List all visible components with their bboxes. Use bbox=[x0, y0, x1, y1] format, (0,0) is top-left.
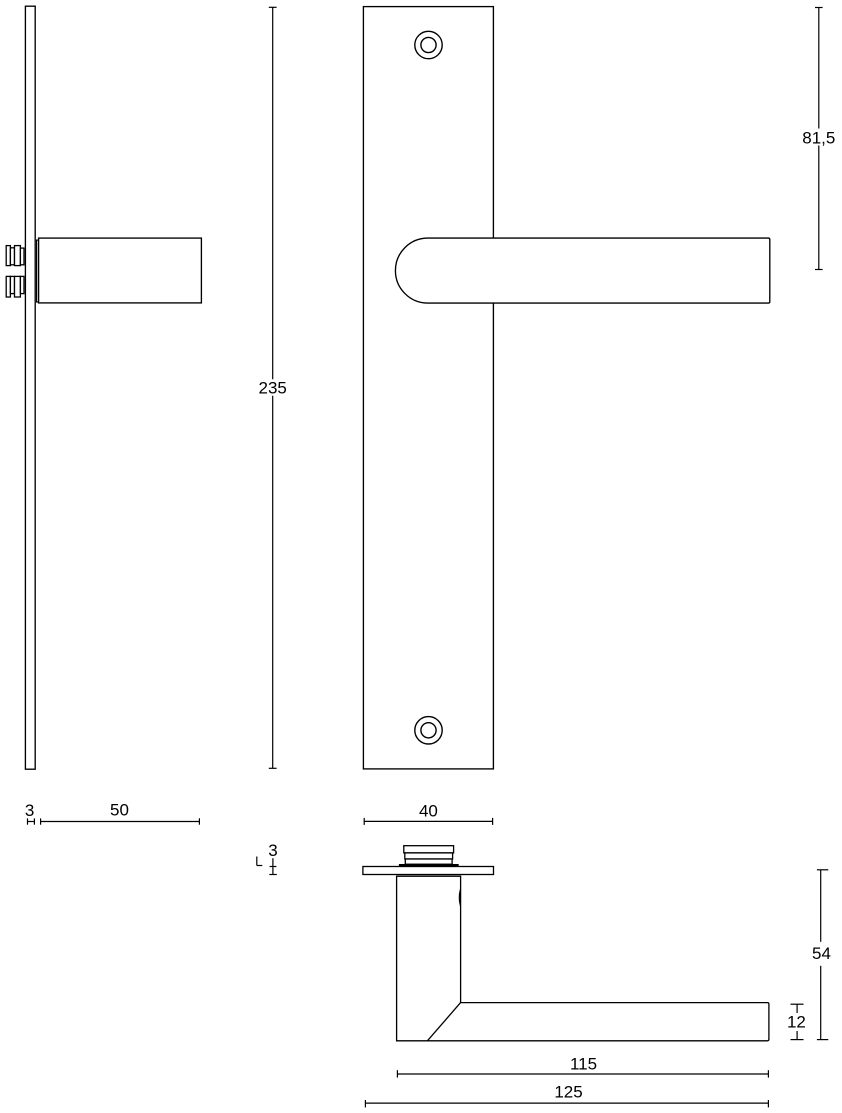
svg-text:115: 115 bbox=[570, 1054, 597, 1073]
svg-text:125: 125 bbox=[554, 1083, 582, 1102]
svg-text:235: 235 bbox=[259, 378, 287, 397]
svg-text:3: 3 bbox=[25, 801, 34, 820]
svg-text:50: 50 bbox=[110, 800, 129, 819]
svg-text:40: 40 bbox=[419, 802, 438, 821]
svg-text:54: 54 bbox=[812, 944, 831, 963]
svg-text:3: 3 bbox=[268, 841, 277, 860]
svg-text:81,5: 81,5 bbox=[802, 128, 835, 147]
svg-text:12: 12 bbox=[787, 1013, 806, 1032]
